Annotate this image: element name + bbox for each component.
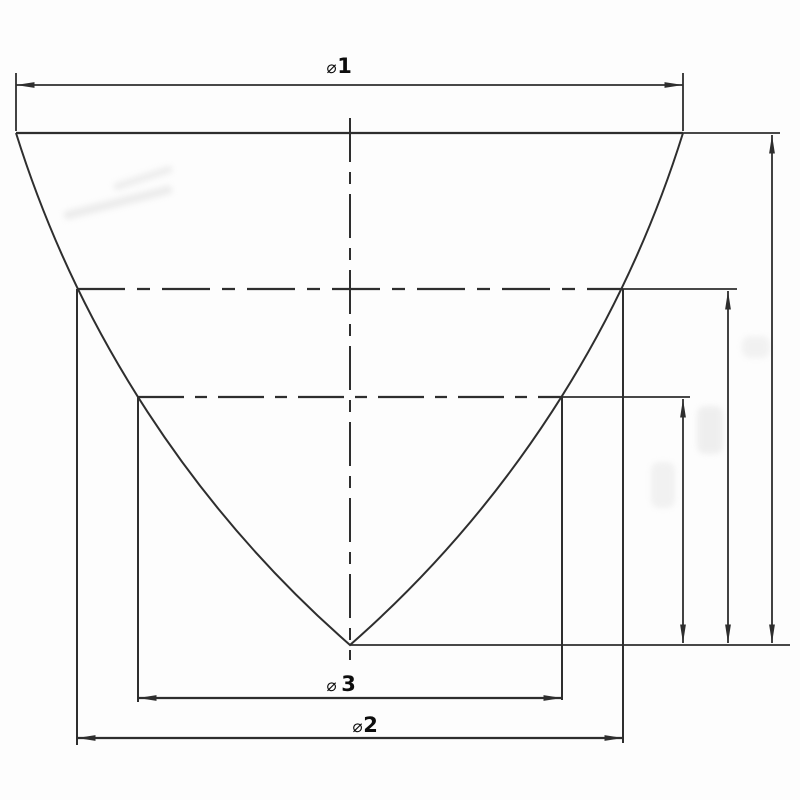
phi3-value: 3 [341,672,356,696]
phi3-diameter-symbol: ⌀ [326,676,337,696]
drawing-canvas: ⌀1 ⌀3 ⌀2 [0,0,800,800]
phi1-value: 1 [337,54,352,78]
label-phi2: ⌀2 [352,713,378,737]
label-phi3: ⌀3 [326,672,356,696]
label-phi1: ⌀1 [326,54,352,78]
phi1-diameter-symbol: ⌀ [326,58,337,78]
phi2-value: 2 [363,713,378,737]
technical-drawing: ⌀1 ⌀3 ⌀2 [0,0,800,800]
phi2-diameter-symbol: ⌀ [352,717,363,737]
